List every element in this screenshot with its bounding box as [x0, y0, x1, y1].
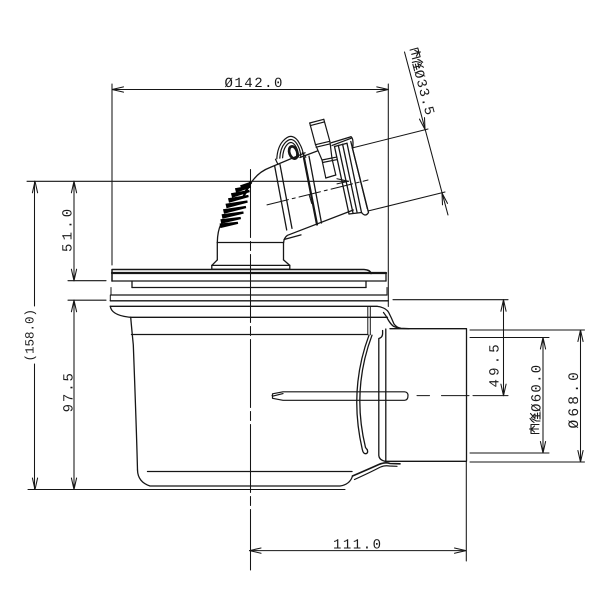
- svg-text:97.5: 97.5: [62, 371, 78, 412]
- svg-text:Ø60.0: Ø60.0: [530, 363, 546, 412]
- svg-text:51.0: 51.0: [61, 206, 77, 252]
- svg-text:111.0: 111.0: [333, 538, 383, 554]
- svg-text:49.5: 49.5: [488, 341, 504, 387]
- svg-text:Ø68.0: Ø68.0: [567, 369, 583, 429]
- svg-text:Ø142.0: Ø142.0: [225, 76, 284, 92]
- svg-text:(158.0): (158.0): [23, 309, 37, 362]
